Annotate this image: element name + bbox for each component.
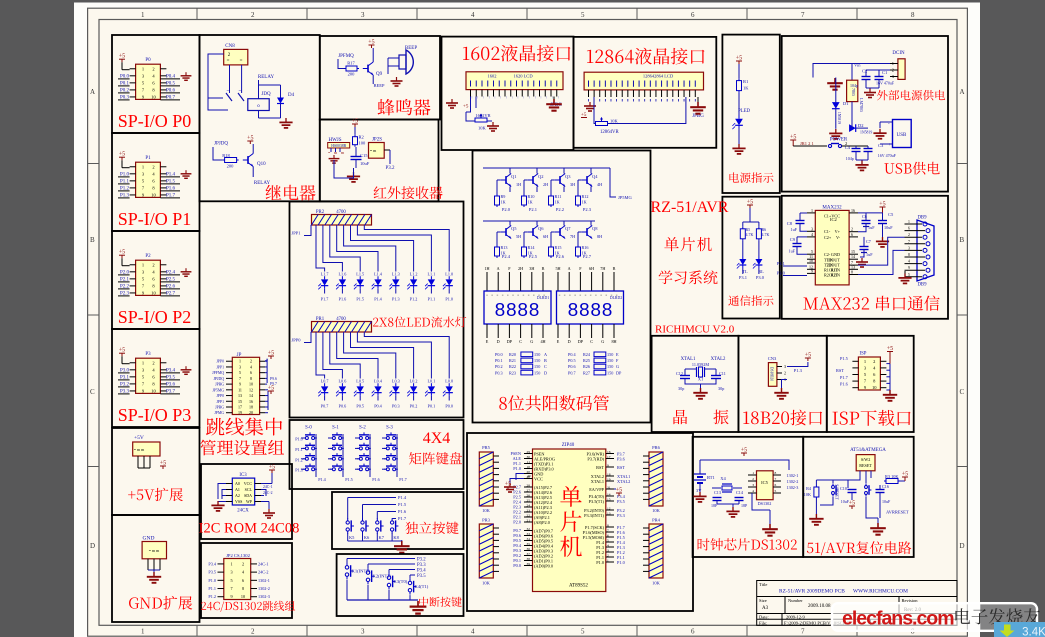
svg-text:JPP0: JPP0 bbox=[216, 360, 224, 364]
svg-text:104p: 104p bbox=[846, 156, 854, 161]
svg-text:Date:: Date: bbox=[759, 614, 769, 619]
svg-text:P0.6: P0.6 bbox=[568, 364, 576, 369]
svg-text:=: = bbox=[486, 293, 488, 297]
svg-text:7: 7 bbox=[775, 477, 777, 481]
svg-text:P0.3: P0.3 bbox=[392, 404, 400, 409]
svg-text:7805: 7805 bbox=[851, 88, 856, 96]
svg-text:2: 2 bbox=[752, 477, 754, 481]
svg-text:6: 6 bbox=[691, 628, 695, 636]
svg-text:R1: R1 bbox=[743, 79, 748, 84]
svg-text:D: D bbox=[568, 339, 571, 344]
svg-text:1302-3: 1302-3 bbox=[787, 485, 799, 490]
svg-text:P2.2: P2.2 bbox=[556, 207, 564, 212]
svg-text:5: 5 bbox=[908, 273, 910, 277]
svg-text:SP-I/O P0: SP-I/O P0 bbox=[118, 111, 192, 131]
svg-text:Vin: Vin bbox=[854, 63, 861, 68]
svg-text:JPP1: JPP1 bbox=[291, 231, 300, 236]
svg-text:24C-2: 24C-2 bbox=[263, 491, 273, 495]
svg-text:2009-12-9: 2009-12-9 bbox=[786, 614, 805, 619]
svg-text:AVRRESET: AVRRESET bbox=[886, 510, 909, 515]
svg-text:1: 1 bbox=[230, 561, 232, 566]
svg-text:14: 14 bbox=[249, 393, 253, 398]
svg-text:L0.2: L0.2 bbox=[410, 379, 418, 384]
svg-text:32: 32 bbox=[527, 527, 531, 531]
svg-text:1: 1 bbox=[142, 262, 144, 267]
svg-text:L1.2: L1.2 bbox=[410, 272, 418, 277]
svg-text:R18: R18 bbox=[222, 153, 230, 158]
svg-text:A3: A3 bbox=[762, 606, 769, 611]
svg-text:15: 15 bbox=[607, 498, 611, 502]
svg-text:8H: 8H bbox=[597, 234, 602, 239]
svg-text:P1.3: P1.3 bbox=[295, 468, 303, 473]
svg-text:5: 5 bbox=[581, 628, 585, 636]
svg-text:= m m: = m m bbox=[134, 447, 145, 452]
svg-text:G: G bbox=[601, 339, 604, 344]
svg-text:5: 5 bbox=[775, 489, 777, 493]
svg-text:=: = bbox=[227, 59, 230, 64]
svg-text:8: 8 bbox=[851, 270, 853, 275]
svg-text:P3: P3 bbox=[145, 352, 151, 357]
svg-text:P3.5: P3.5 bbox=[617, 499, 625, 504]
svg-text:36: 36 bbox=[527, 547, 531, 551]
svg-text:6: 6 bbox=[691, 11, 695, 19]
svg-text:24: 24 bbox=[527, 504, 531, 508]
svg-text:7: 7 bbox=[230, 586, 232, 591]
svg-text:P0.2: P0.2 bbox=[410, 404, 418, 409]
svg-text:3: 3 bbox=[784, 364, 786, 369]
svg-text:P1.2: P1.2 bbox=[295, 457, 303, 462]
svg-text:1: 1 bbox=[752, 471, 754, 475]
svg-text:= m m: = m m bbox=[149, 548, 160, 553]
svg-text:2: 2 bbox=[250, 359, 252, 364]
svg-text:C6: C6 bbox=[862, 214, 867, 219]
svg-text:JPP1: JPP1 bbox=[216, 365, 224, 369]
svg-text:P1.5: P1.5 bbox=[398, 502, 407, 507]
svg-text:PR5: PR5 bbox=[482, 445, 491, 450]
svg-text:P1.4: P1.4 bbox=[318, 477, 326, 482]
svg-text:10uF: 10uF bbox=[884, 225, 893, 230]
svg-text:16V 470uF: 16V 470uF bbox=[876, 81, 895, 86]
svg-text:104p: 104p bbox=[850, 83, 858, 88]
svg-text:=: = bbox=[611, 293, 613, 297]
svg-text:200: 200 bbox=[348, 72, 356, 77]
svg-text:1602VR: 1602VR bbox=[475, 113, 490, 118]
svg-text:P1.3: P1.3 bbox=[794, 368, 803, 373]
svg-text:Q1: Q1 bbox=[511, 174, 517, 179]
svg-text:10uF: 10uF bbox=[360, 161, 370, 166]
svg-text:IC5: IC5 bbox=[761, 480, 769, 485]
svg-text:P2.7: P2.7 bbox=[583, 254, 592, 259]
svg-text:37: 37 bbox=[527, 552, 531, 556]
svg-text:25: 25 bbox=[527, 499, 531, 503]
svg-text:3: 3 bbox=[230, 570, 232, 575]
svg-text:8: 8 bbox=[242, 586, 244, 591]
svg-text:B: B bbox=[613, 266, 616, 271]
svg-text:4H: 4H bbox=[597, 182, 602, 187]
svg-text:S-1: S-1 bbox=[332, 426, 339, 431]
svg-text:P1.6: P1.6 bbox=[840, 382, 849, 387]
svg-text:1uF: 1uF bbox=[790, 227, 797, 232]
svg-text:16: 16 bbox=[607, 450, 611, 454]
svg-text:CN3: CN3 bbox=[768, 356, 777, 361]
svg-text:=: = bbox=[507, 293, 509, 297]
svg-text:7H: 7H bbox=[600, 266, 605, 271]
svg-text:100: 100 bbox=[359, 141, 367, 146]
svg-text:10: 10 bbox=[872, 385, 877, 390]
svg-text:2: 2 bbox=[607, 554, 609, 558]
svg-text:D2: D2 bbox=[858, 123, 864, 128]
svg-text:DS18B20: DS18B20 bbox=[770, 367, 774, 381]
svg-text:C2-: C2- bbox=[824, 252, 831, 257]
svg-text:P0.0: P0.0 bbox=[513, 563, 521, 568]
svg-text:9: 9 bbox=[230, 594, 232, 599]
svg-text:S-2: S-2 bbox=[359, 426, 366, 431]
svg-text:P2.3: P2.3 bbox=[583, 207, 592, 212]
svg-text:RELAY: RELAY bbox=[254, 181, 271, 186]
svg-text:D: D bbox=[90, 542, 95, 550]
svg-text:16: 16 bbox=[249, 399, 253, 404]
svg-text:C10: C10 bbox=[840, 486, 847, 491]
svg-text:=: = bbox=[522, 293, 524, 297]
svg-text:L1.0: L1.0 bbox=[445, 272, 453, 277]
svg-text:R25: R25 bbox=[583, 358, 590, 363]
svg-text:1: 1 bbox=[811, 208, 813, 213]
svg-text:JPP0: JPP0 bbox=[291, 338, 301, 343]
svg-text:(AD0)P0.0: (AD0)P0.0 bbox=[534, 563, 553, 568]
svg-text:4X4: 4X4 bbox=[423, 430, 451, 447]
svg-text:S/W2: S/W2 bbox=[861, 457, 871, 462]
svg-text:3V: 3V bbox=[696, 488, 702, 493]
svg-text:AT51&ATMEGA: AT51&ATMEGA bbox=[850, 448, 886, 453]
svg-text:8888: 8888 bbox=[567, 300, 613, 322]
svg-text:C5: C5 bbox=[888, 212, 894, 217]
svg-text:JPBG: JPBG bbox=[215, 405, 224, 409]
svg-text:D: D bbox=[497, 339, 500, 344]
svg-text:1: 1 bbox=[142, 164, 144, 169]
svg-text:7H: 7H bbox=[570, 234, 575, 239]
svg-text:34: 34 bbox=[527, 537, 531, 541]
svg-text:6: 6 bbox=[607, 534, 609, 538]
svg-text:P3.4: P3.4 bbox=[208, 561, 216, 566]
svg-text:CN8: CN8 bbox=[225, 44, 235, 49]
svg-text:JP5MG: JP5MG bbox=[212, 388, 224, 392]
svg-text:P1.2: P1.2 bbox=[208, 594, 216, 599]
svg-text:1uF: 1uF bbox=[788, 249, 795, 254]
svg-text:XTAL2: XTAL2 bbox=[711, 357, 726, 362]
svg-text:VCC: VCC bbox=[534, 476, 543, 481]
svg-text:S1RESET: S1RESET bbox=[835, 484, 839, 500]
svg-text:P1.0: P1.0 bbox=[445, 297, 453, 302]
svg-text:9: 9 bbox=[607, 464, 609, 468]
svg-text:2: 2 bbox=[908, 233, 910, 237]
svg-text:L1.6: L1.6 bbox=[339, 272, 347, 277]
svg-text:RELAY: RELAY bbox=[258, 75, 275, 80]
svg-text:39: 39 bbox=[527, 562, 531, 566]
svg-text:10: 10 bbox=[151, 94, 156, 99]
svg-text:Q10: Q10 bbox=[257, 162, 266, 167]
svg-text:WWW.RICHMCU.COM: WWW.RICHMCU.COM bbox=[853, 589, 908, 595]
svg-text:P3.5: P3.5 bbox=[417, 574, 426, 579]
svg-text:200: 200 bbox=[227, 164, 235, 169]
svg-text:22: 22 bbox=[527, 514, 531, 518]
svg-text:31: 31 bbox=[607, 486, 611, 490]
svg-text:JR1 2 1: JR1 2 1 bbox=[800, 141, 814, 146]
svg-text:P0.4: P0.4 bbox=[568, 352, 576, 357]
svg-text:C12: C12 bbox=[676, 371, 683, 376]
svg-text:A: A bbox=[568, 266, 571, 271]
svg-text:2: 2 bbox=[242, 561, 244, 566]
svg-text:=: = bbox=[538, 293, 540, 297]
svg-text:1H: 1H bbox=[484, 266, 489, 271]
svg-text:L1.5: L1.5 bbox=[356, 272, 364, 277]
svg-text:P0.7: P0.7 bbox=[321, 404, 329, 409]
svg-text:JPJDQ: JPJDQ bbox=[214, 142, 228, 147]
svg-text:P1.4: P1.4 bbox=[398, 495, 407, 500]
svg-text:10: 10 bbox=[527, 465, 531, 469]
svg-text:10K: 10K bbox=[478, 126, 487, 131]
svg-text:5H: 5H bbox=[516, 234, 521, 239]
svg-text:P1.4: P1.4 bbox=[374, 297, 382, 302]
svg-text:C7: C7 bbox=[866, 239, 871, 244]
svg-text:SP-I/O P3: SP-I/O P3 bbox=[118, 405, 192, 425]
svg-text:(A8)P2.0: (A8)P2.0 bbox=[534, 520, 550, 525]
svg-text:PR6: PR6 bbox=[652, 445, 661, 450]
svg-text:C16: C16 bbox=[882, 484, 889, 489]
svg-text:12: 12 bbox=[607, 507, 611, 511]
svg-text:4: 4 bbox=[811, 232, 813, 237]
svg-text:P0.2: P0.2 bbox=[495, 364, 503, 369]
svg-text:1K: 1K bbox=[555, 200, 560, 205]
svg-text:P0.3: P0.3 bbox=[495, 370, 503, 375]
svg-text:6: 6 bbox=[908, 227, 910, 231]
svg-text:R16: R16 bbox=[582, 245, 589, 250]
svg-text:K5: K5 bbox=[349, 535, 355, 540]
svg-text:WP: WP bbox=[246, 499, 253, 504]
svg-text:11: 11 bbox=[238, 387, 242, 392]
svg-text:R15: R15 bbox=[555, 245, 562, 250]
svg-text:=: = bbox=[579, 293, 581, 297]
svg-text:D4: D4 bbox=[288, 93, 295, 98]
svg-text:12864VR: 12864VR bbox=[600, 130, 619, 135]
svg-text:JDQ: JDQ bbox=[261, 92, 271, 97]
svg-text:4: 4 bbox=[471, 628, 475, 636]
svg-text:A: A bbox=[90, 88, 95, 96]
svg-text:24C-1: 24C-1 bbox=[263, 485, 273, 489]
svg-text:P3.1: P3.1 bbox=[777, 261, 785, 266]
svg-text:+5V: +5V bbox=[134, 435, 144, 441]
svg-text:16V 470uF: 16V 470uF bbox=[878, 153, 897, 158]
svg-text:P1.1: P1.1 bbox=[295, 447, 303, 452]
svg-text:~: ~ bbox=[227, 89, 230, 94]
svg-text:4: 4 bbox=[471, 11, 475, 19]
svg-text:26: 26 bbox=[527, 494, 531, 498]
svg-text:=: = bbox=[528, 293, 530, 297]
svg-text:L1.7: L1.7 bbox=[321, 272, 329, 277]
svg-text:P1.7: P1.7 bbox=[399, 477, 407, 482]
svg-text:9: 9 bbox=[239, 382, 241, 387]
svg-text:C11: C11 bbox=[719, 371, 726, 376]
svg-text:P3.1: P3.1 bbox=[739, 275, 747, 280]
svg-text:5: 5 bbox=[581, 11, 585, 19]
svg-text:P3.7(RD): P3.7(RD) bbox=[587, 456, 604, 461]
svg-text:150: 150 bbox=[534, 364, 540, 369]
svg-text:File:: File: bbox=[759, 620, 767, 625]
svg-text:4: 4 bbox=[752, 489, 754, 493]
svg-text:=: = bbox=[600, 293, 602, 297]
svg-text:JPBG: JPBG bbox=[692, 114, 704, 119]
svg-text:128642864 LCD: 128642864 LCD bbox=[643, 74, 674, 79]
svg-text:40: 40 bbox=[527, 474, 531, 478]
svg-text:P2: P2 bbox=[145, 254, 151, 259]
svg-text:G: G bbox=[616, 364, 619, 369]
svg-text:P1.0: P1.0 bbox=[513, 466, 521, 471]
svg-text:10: 10 bbox=[151, 192, 156, 197]
svg-text:6H: 6H bbox=[589, 266, 594, 271]
svg-text:P1.0: P1.0 bbox=[295, 437, 303, 442]
svg-text:C: C bbox=[544, 364, 547, 369]
svg-text:6: 6 bbox=[775, 483, 777, 487]
svg-text:ZIP40: ZIP40 bbox=[562, 443, 575, 448]
svg-text:R2: R2 bbox=[359, 135, 364, 140]
svg-text:K6: K6 bbox=[364, 535, 370, 540]
svg-text:16: 16 bbox=[851, 208, 855, 213]
svg-text:1: 1 bbox=[607, 559, 609, 563]
svg-text:JP2S: JP2S bbox=[372, 138, 382, 143]
svg-text:XTAL2: XTAL2 bbox=[617, 479, 630, 484]
svg-text:10uF: 10uF bbox=[882, 499, 891, 504]
svg-text:R23: R23 bbox=[509, 370, 516, 375]
svg-text:K8: K8 bbox=[393, 535, 399, 540]
svg-text:P1.7: P1.7 bbox=[840, 375, 849, 380]
svg-text:Q3: Q3 bbox=[565, 174, 571, 179]
svg-text:P3.0: P3.0 bbox=[777, 271, 786, 276]
svg-text:1: 1 bbox=[239, 359, 241, 364]
svg-text:P0.5: P0.5 bbox=[356, 404, 364, 409]
svg-text:D: D bbox=[960, 542, 965, 550]
svg-text:A: A bbox=[544, 352, 547, 357]
svg-text:DB9: DB9 bbox=[917, 216, 927, 221]
svg-text:AT89S52: AT89S52 bbox=[569, 584, 588, 589]
svg-text:RZ-51/AVR 2009DEMO PCB: RZ-51/AVR 2009DEMO PCB bbox=[779, 589, 845, 595]
svg-text:P3.3: P3.3 bbox=[417, 563, 426, 568]
svg-text:VCC: VCC bbox=[244, 481, 253, 486]
svg-text:35: 35 bbox=[527, 542, 531, 546]
svg-text:S-3: S-3 bbox=[386, 426, 393, 431]
svg-text:L0.6: L0.6 bbox=[339, 379, 347, 384]
svg-text:18: 18 bbox=[607, 473, 611, 477]
svg-text:DP: DP bbox=[507, 339, 513, 344]
svg-text:P1.5: P1.5 bbox=[345, 477, 353, 482]
svg-text:13: 13 bbox=[238, 393, 242, 398]
svg-text:RST: RST bbox=[836, 368, 844, 373]
svg-text:2: 2 bbox=[152, 164, 154, 169]
svg-text:SP-I/O P1: SP-I/O P1 bbox=[118, 209, 192, 229]
svg-text:C: C bbox=[960, 388, 965, 396]
svg-text:E: E bbox=[557, 339, 560, 344]
svg-text:P1.5: P1.5 bbox=[840, 356, 848, 361]
svg-text:P1.6: P1.6 bbox=[372, 477, 380, 482]
svg-text:18P: 18P bbox=[741, 503, 748, 508]
svg-text:=: = bbox=[574, 293, 576, 297]
svg-text:7: 7 bbox=[239, 376, 241, 381]
svg-text:1uF: 1uF bbox=[866, 252, 873, 257]
svg-text:L0.1: L0.1 bbox=[428, 379, 436, 384]
svg-text:19: 19 bbox=[607, 478, 611, 482]
svg-text:=: = bbox=[512, 293, 514, 297]
svg-text:1620 LCD: 1620 LCD bbox=[513, 74, 533, 79]
svg-text:1K: 1K bbox=[582, 200, 587, 205]
svg-text:=: = bbox=[595, 293, 597, 297]
svg-text:V-: V- bbox=[836, 235, 841, 240]
svg-text:27: 27 bbox=[527, 489, 531, 493]
svg-text:P0.6: P0.6 bbox=[339, 404, 347, 409]
svg-text:Q4: Q4 bbox=[592, 174, 598, 179]
svg-text:+5: +5 bbox=[463, 105, 469, 110]
svg-text:P1.6: P1.6 bbox=[398, 509, 407, 514]
svg-text:150: 150 bbox=[607, 358, 613, 363]
svg-text:R2IN: R2IN bbox=[831, 273, 840, 278]
svg-text:Q8: Q8 bbox=[592, 226, 598, 231]
svg-text:1: 1 bbox=[142, 66, 144, 71]
svg-text:R24: R24 bbox=[583, 352, 591, 357]
svg-text:Q2: Q2 bbox=[538, 174, 544, 179]
svg-text:7: 7 bbox=[908, 240, 910, 244]
svg-text:28: 28 bbox=[527, 484, 531, 488]
svg-text:9: 9 bbox=[811, 268, 813, 273]
svg-text:150: 150 bbox=[607, 364, 613, 369]
svg-text:RICHIMCU V2.0: RICHIMCU V2.0 bbox=[655, 324, 735, 336]
svg-text:1N5819: 1N5819 bbox=[837, 112, 841, 124]
svg-text:P3.3: P3.3 bbox=[617, 513, 625, 518]
svg-text:1: 1 bbox=[864, 359, 866, 364]
svg-text:VSS: VSS bbox=[235, 499, 242, 504]
svg-text:1N5819: 1N5819 bbox=[860, 131, 872, 135]
svg-text:3: 3 bbox=[607, 549, 609, 553]
svg-text:5: 5 bbox=[239, 370, 241, 375]
svg-text:R21: R21 bbox=[509, 358, 516, 363]
svg-text:Title: Title bbox=[759, 582, 767, 587]
svg-text:DP: DP bbox=[578, 339, 584, 344]
svg-text:2: 2 bbox=[251, 11, 255, 19]
svg-text:L1.3: L1.3 bbox=[392, 272, 400, 277]
svg-text:C1: C1 bbox=[882, 70, 887, 75]
svg-text:23: 23 bbox=[527, 509, 531, 513]
svg-text:=: = bbox=[585, 293, 587, 297]
svg-text:X4: X4 bbox=[720, 476, 726, 481]
svg-text:7: 7 bbox=[607, 529, 609, 533]
svg-text:150: 150 bbox=[534, 370, 540, 375]
svg-text:3: 3 bbox=[908, 246, 910, 250]
svg-text:VCC: VCC bbox=[831, 214, 840, 219]
svg-text:P0.7: P0.7 bbox=[568, 370, 576, 375]
svg-text:R17: R17 bbox=[347, 61, 355, 66]
svg-text:R9: R9 bbox=[501, 194, 506, 199]
svg-text:9: 9 bbox=[908, 266, 910, 270]
svg-text:LM7805: LM7805 bbox=[859, 98, 864, 112]
svg-text:P3.5: P3.5 bbox=[208, 570, 216, 575]
svg-text:C2: C2 bbox=[862, 69, 867, 74]
svg-text:L0.3: L0.3 bbox=[392, 379, 400, 384]
svg-text:2: 2 bbox=[873, 359, 875, 364]
svg-text:P2.0: P2.0 bbox=[502, 207, 511, 212]
svg-text:C13: C13 bbox=[714, 490, 721, 495]
svg-text:A1: A1 bbox=[235, 487, 240, 492]
svg-text:=: = bbox=[605, 293, 607, 297]
svg-text:21: 21 bbox=[527, 519, 531, 523]
svg-text:=: = bbox=[616, 293, 618, 297]
svg-text:C: C bbox=[90, 388, 95, 396]
svg-text:C15: C15 bbox=[360, 153, 368, 158]
